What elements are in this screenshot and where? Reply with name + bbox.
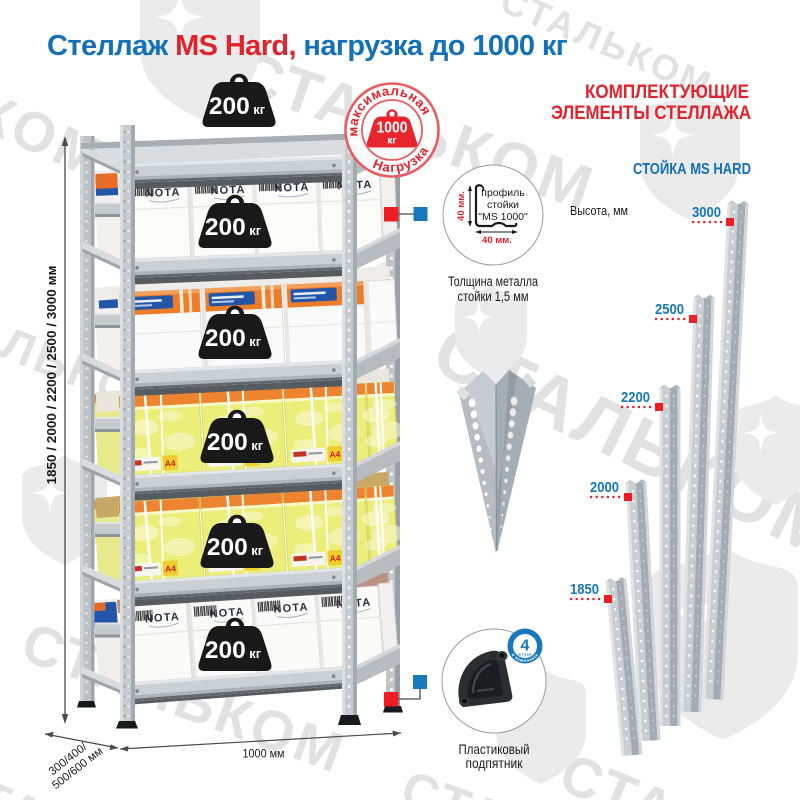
svg-text:2500: 2500 [655, 302, 684, 318]
svg-text:2200: 2200 [621, 390, 650, 406]
svg-text:3000: 3000 [692, 205, 721, 221]
svg-text:стойки: стойки [487, 199, 519, 211]
svg-text:A4: A4 [329, 449, 341, 460]
svg-text:Высота, мм: Высота, мм [570, 203, 628, 218]
svg-text:1850: 1850 [570, 582, 599, 598]
svg-text:"MS 1000": "MS 1000" [478, 211, 528, 223]
svg-text:кг: кг [387, 136, 396, 147]
svg-text:1850 / 2000 / 2200 / 2500 / 30: 1850 / 2000 / 2200 / 2500 / 3000 мм [45, 266, 59, 485]
svg-text:1000 мм: 1000 мм [243, 747, 285, 761]
svg-text:стойки 1,5 мм: стойки 1,5 мм [458, 289, 529, 304]
svg-text:40 мм.: 40 мм. [482, 235, 512, 246]
svg-text:1000: 1000 [377, 120, 408, 137]
svg-text:2000: 2000 [590, 480, 619, 496]
svg-text:штуки: штуки [518, 652, 532, 657]
svg-text:40 мм.: 40 мм. [456, 191, 467, 221]
svg-text:СТОЙКА MS HARD: СТОЙКА MS HARD [633, 160, 751, 178]
svg-text:NOTA: NOTA [145, 187, 181, 200]
svg-text:СТАЛЬКОМ: СТАЛЬКОМ [552, 741, 800, 800]
svg-text:КОМПЛЕКТУЮЩИЕ: КОМПЛЕКТУЮЩИЕ [585, 82, 749, 103]
svg-text:A4: A4 [164, 458, 176, 469]
svg-text:ЭЛЕМЕНТЫ СТЕЛЛАЖА: ЭЛЕМЕНТЫ СТЕЛЛАЖА [551, 103, 751, 124]
svg-text:СТАЛЬКОМ: СТАЛЬКОМ [0, 754, 238, 800]
svg-text:Стеллаж MS Hard, нагрузка до 1: Стеллаж MS Hard, нагрузка до 1000 кг [47, 30, 568, 62]
svg-text:подпятник: подпятник [466, 755, 524, 771]
svg-text:A4: A4 [329, 553, 341, 564]
svg-text:Толщина металла: Толщина металла [448, 274, 538, 289]
svg-text:A4: A4 [165, 563, 177, 574]
svg-text:профиль: профиль [481, 187, 525, 199]
